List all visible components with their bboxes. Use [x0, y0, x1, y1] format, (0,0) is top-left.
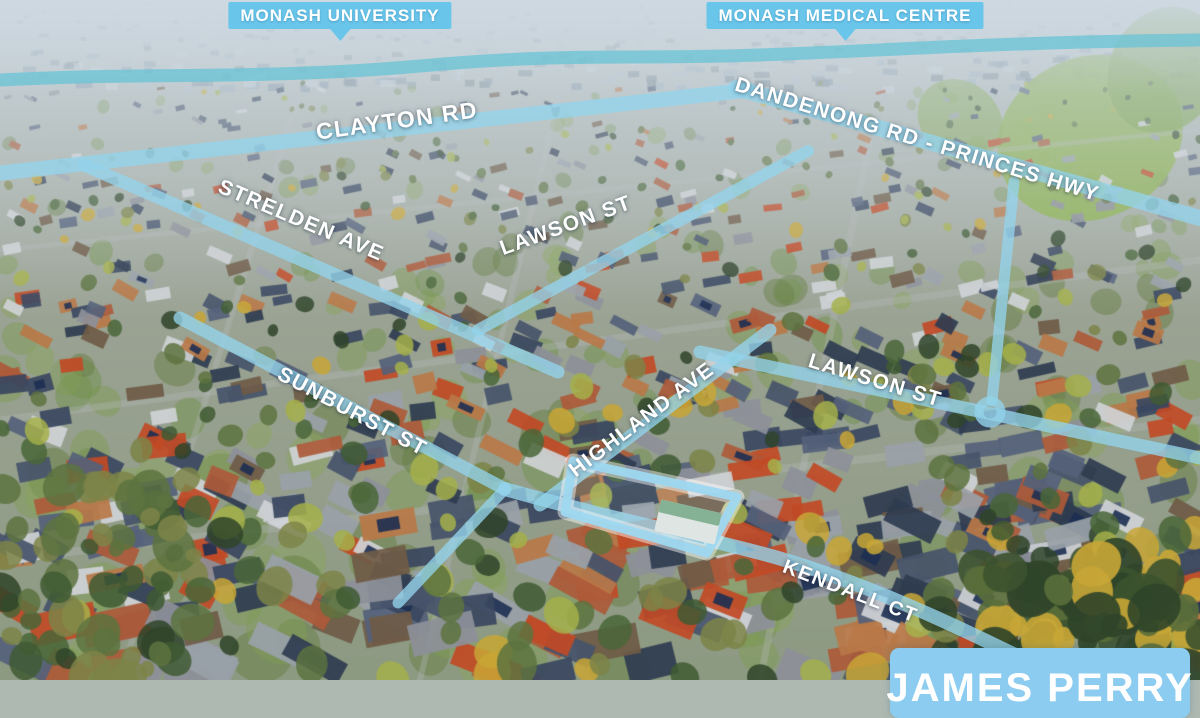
callout-label: MONASH UNIVERSITY — [240, 6, 439, 25]
brand-logo-box: JAMES PERRY — [890, 648, 1190, 718]
brand-name: JAMES PERRY — [886, 666, 1193, 711]
callout-pointer — [329, 28, 351, 41]
callout-label: MONASH MEDICAL CENTRE — [718, 6, 971, 25]
road-cross-street — [992, 182, 1014, 401]
callout-pointer — [834, 28, 856, 41]
aerial-locality-map: { "overlay": { "landmarks": [ { "id": "m… — [0, 0, 1200, 680]
callout-monash-university: MONASH UNIVERSITY — [228, 2, 451, 29]
callout-monash-medical-centre: MONASH MEDICAL CENTRE — [706, 2, 983, 29]
road-strelden-ave — [84, 165, 558, 372]
creek-highlight — [0, 40, 1200, 80]
map-overlay — [0, 0, 1200, 680]
road-side-street — [398, 489, 505, 603]
road-lawson-st-east — [700, 352, 1200, 458]
